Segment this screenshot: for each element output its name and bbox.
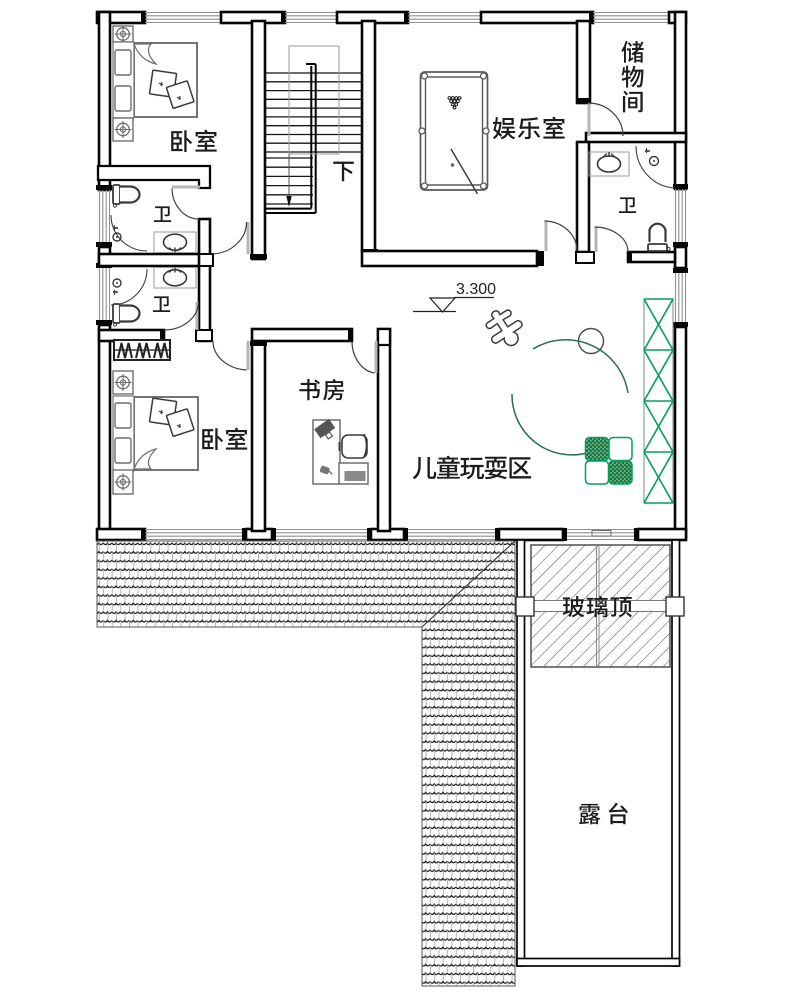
svg-text:3.300: 3.300 [456,281,496,298]
